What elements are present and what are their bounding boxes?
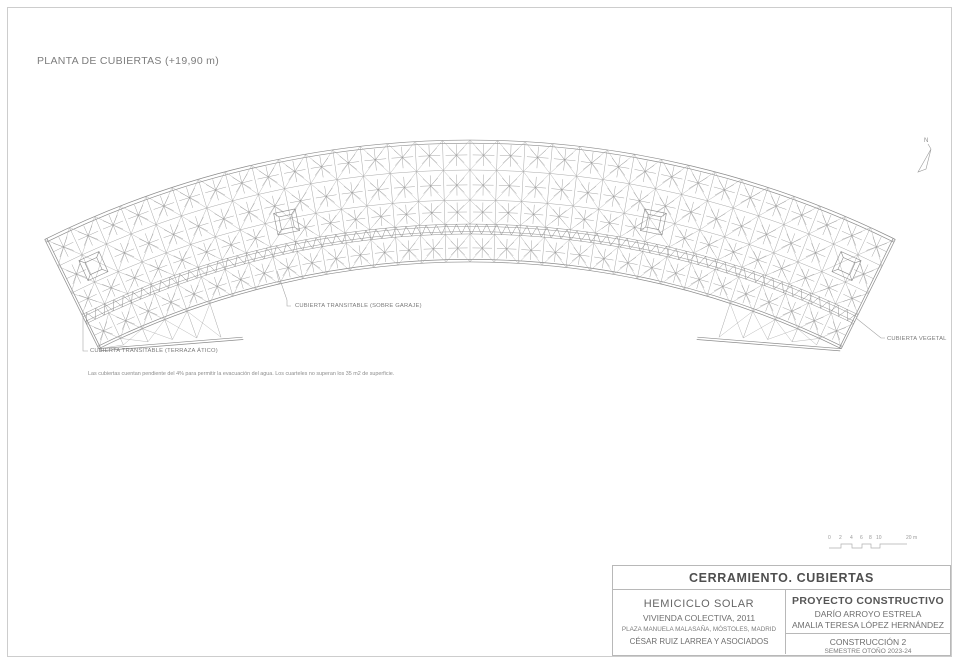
authors-cell: PROYECTO CONSTRUCTIVO DARÍO ARROYO ESTRE… [786,590,950,634]
course-type: PROYECTO CONSTRUCTIVO [786,595,950,607]
scalebar-tick: 0 [828,535,831,541]
scalebar-tick: 4 [850,535,853,541]
label-cubierta-vegetal: CUBIERTA VEGETAL [887,336,947,342]
scalebar-tick: 2 [839,535,842,541]
label-cubierta-sobre-garaje: CUBIERTA TRANSITABLE (SOBRE GARAJE) [295,303,422,309]
north-arrow-icon [918,144,931,172]
course-cell: PROYECTO CONSTRUCTIVO DARÍO ARROYO ESTRE… [785,590,950,654]
slope-note: Las cubiertas cuentan pendiente del 4% p… [88,371,394,377]
project-cell: HEMICICLO SOLAR VIVIENDA COLECTIVA, 2011… [613,590,785,654]
title-block-body: HEMICICLO SOLAR VIVIENDA COLECTIVA, 2011… [613,590,950,654]
project-subtitle: VIVIENDA COLECTIVA, 2011 [613,613,785,623]
scalebar-end-label: 20 m [906,535,917,541]
scalebar-line [829,544,907,548]
author-2: AMALIA TERESA LÓPEZ HERNÁNDEZ [786,620,950,630]
course-term: SEMESTRE OTOÑO 2023-24 [786,648,950,655]
band-grid-lines [45,140,896,349]
page-title: PLANTA DE CUBIERTAS (+19,90 m) [37,55,219,67]
scalebar-tick: 8 [869,535,872,541]
author-1: DARÍO ARROYO ESTRELA [786,609,950,619]
project-architect: CÉSAR RUIZ LARREA Y ASOCIADOS [613,637,785,646]
scalebar-tick: 6 [860,535,863,541]
scalebar-tick: 10 [876,535,882,541]
north-arrow-label: N [924,138,928,144]
title-block: CERRAMIENTO. CUBIERTAS HEMICICLO SOLAR V… [612,565,951,656]
course-subject: CONSTRUCCIÓN 2 [786,637,950,647]
label-cubierta-terraza-atico: CUBIERTA TRANSITABLE (TERRAZA ÁTICO) [90,348,218,354]
roof-plan-drawing [0,0,958,663]
drawing-sheet: { "page": { "title": "PLANTA DE CUBIERTA… [0,0,958,663]
project-address: PLAZA MANUELA MALASAÑA, MÓSTOLES, MADRID [613,626,785,633]
subject-cell: CONSTRUCCIÓN 2 SEMESTRE OTOÑO 2023-24 [786,634,950,655]
sheet-title: CERRAMIENTO. CUBIERTAS [613,566,950,590]
project-name: HEMICICLO SOLAR [613,598,785,610]
